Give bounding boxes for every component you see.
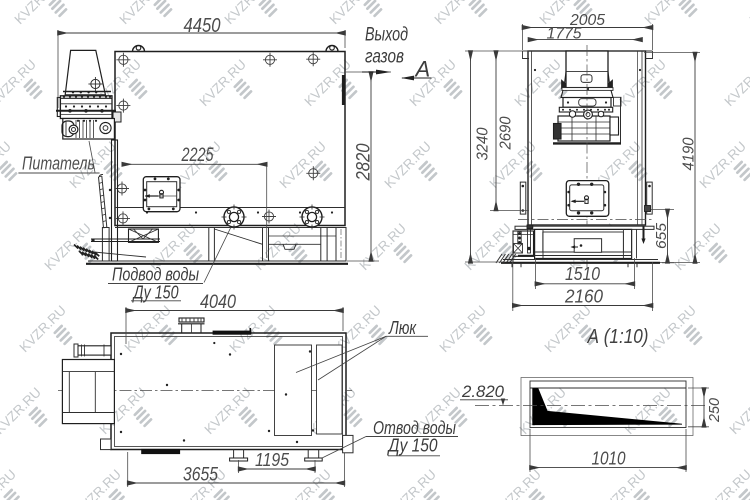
svg-text:KVZR.RU: KVZR.RU [42, 221, 95, 274]
svg-text:3655: 3655 [183, 465, 218, 486]
svg-text:KVZR.RU: KVZR.RU [197, 57, 250, 110]
svg-text:2690: 2690 [498, 116, 515, 150]
svg-text:3240: 3240 [475, 127, 492, 160]
svg-text:А (1:10): А (1:10) [587, 326, 649, 348]
svg-text:Люк: Люк [388, 318, 417, 338]
svg-text:KVZR.RU: KVZR.RU [722, 57, 750, 110]
svg-text:KVZR.RU: KVZR.RU [17, 303, 70, 356]
svg-text:KVZR.RU: KVZR.RU [462, 221, 515, 274]
svg-text:2.820: 2.820 [461, 382, 505, 401]
svg-text:KVZR.RU: KVZR.RU [672, 221, 725, 274]
svg-text:4450: 4450 [184, 15, 221, 37]
svg-text:KVZR.RU: KVZR.RU [727, 385, 750, 438]
svg-text:KVZR.RU: KVZR.RU [302, 57, 355, 110]
svg-text:KVZR.RU: KVZR.RU [0, 467, 19, 500]
svg-text:KVZR.RU: KVZR.RU [357, 221, 410, 274]
svg-text:250: 250 [706, 397, 723, 423]
svg-text:1510: 1510 [565, 264, 600, 284]
svg-text:KVZR.RU: KVZR.RU [617, 57, 670, 110]
svg-text:2225: 2225 [181, 145, 214, 166]
svg-text:2160: 2160 [564, 287, 603, 307]
svg-text:KVZR.RU: KVZR.RU [512, 57, 565, 110]
svg-text:4190: 4190 [681, 137, 698, 170]
svg-text:KVZR.RU: KVZR.RU [252, 221, 305, 274]
svg-text:4040: 4040 [200, 292, 236, 313]
svg-text:Ду 150: Ду 150 [132, 283, 179, 303]
svg-text:KVZR.RU: KVZR.RU [277, 139, 330, 192]
svg-text:KVZR.RU: KVZR.RU [202, 385, 255, 438]
svg-text:KVZR.RU: KVZR.RU [0, 57, 39, 110]
svg-text:KVZR.RU: KVZR.RU [647, 303, 700, 356]
svg-text:Ду 150: Ду 150 [387, 436, 438, 456]
svg-text:KVZR.RU: KVZR.RU [622, 385, 675, 438]
svg-text:1195: 1195 [255, 450, 290, 470]
svg-text:KVZR.RU: KVZR.RU [747, 0, 750, 27]
svg-text:655: 655 [653, 222, 670, 249]
svg-text:Питатель: Питатель [22, 154, 95, 174]
svg-text:1775: 1775 [547, 26, 582, 43]
svg-text:KVZR.RU: KVZR.RU [0, 385, 44, 438]
svg-text:Выход: Выход [365, 25, 408, 46]
svg-text:KVZR.RU: KVZR.RU [437, 303, 490, 356]
svg-text:газов: газов [365, 47, 404, 68]
svg-text:KVZR.RU: KVZR.RU [382, 139, 435, 192]
svg-text:2820: 2820 [354, 143, 375, 181]
svg-text:KVZR.RU: KVZR.RU [407, 57, 460, 110]
svg-text:KVZR.RU: KVZR.RU [697, 139, 750, 192]
svg-text:1010: 1010 [592, 449, 626, 469]
svg-text:KVZR.RU: KVZR.RU [542, 303, 595, 356]
svg-text:Подвод воды: Подвод воды [112, 265, 199, 285]
